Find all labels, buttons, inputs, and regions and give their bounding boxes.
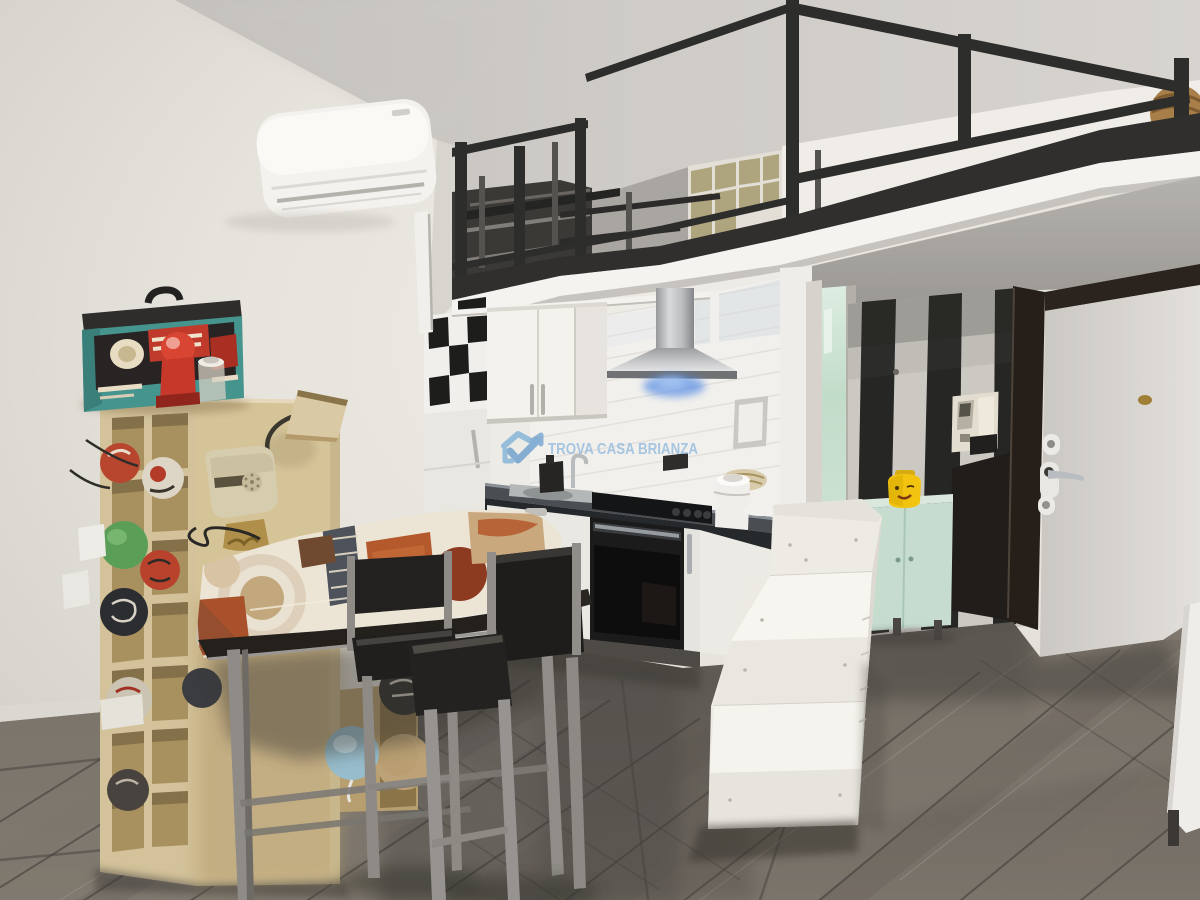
svg-text:TROVA CASA BRIANZA: TROVA CASA BRIANZA	[548, 441, 698, 458]
